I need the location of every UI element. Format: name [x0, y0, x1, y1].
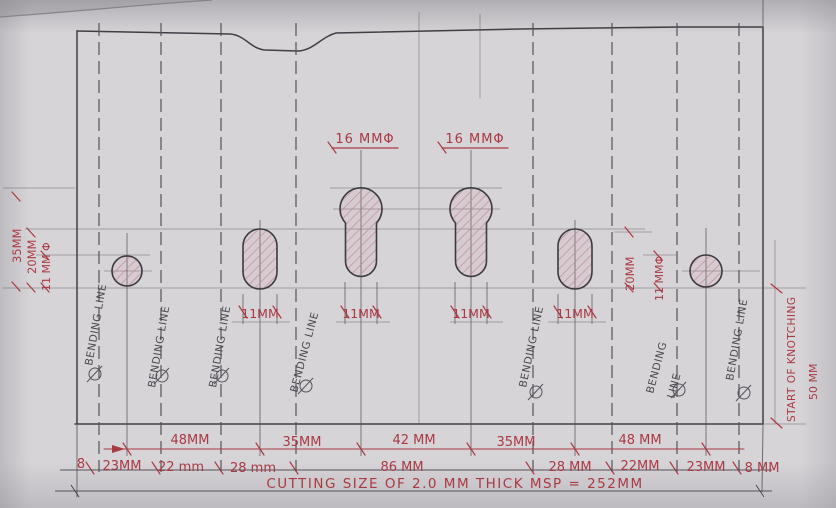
seg-23-left: 23MM	[103, 459, 142, 474]
dim-35-2: 35MM	[497, 435, 536, 450]
keyhole-slot-left-16mm	[340, 188, 382, 277]
dim-35-1: 35MM	[283, 435, 322, 450]
width-label-keyhole-1: 11MM	[342, 306, 379, 321]
seg-22-right: 22MM	[621, 459, 660, 474]
right-dim-11mm-dia: 11 MMΦ	[653, 256, 666, 301]
photographed-drawing-sheet: 16 MMΦ 16 MMΦ 11MM 11MM 11MM 11MM 35MM 2…	[0, 0, 836, 508]
cutting-size-note: CUTTING SIZE OF 2.0 MM THICK MSP = 252MM	[266, 476, 643, 492]
paper-background	[0, 0, 836, 508]
slot-right-11mm	[558, 229, 592, 289]
round-hole-left-11mm	[112, 256, 142, 286]
round-hole-right-11mm	[690, 255, 722, 287]
seg-28-left: 28 mm	[230, 461, 276, 476]
width-label-slot-2: 11MM	[556, 306, 593, 321]
left-dim-35mm: 35MM	[10, 229, 24, 263]
seg-22-left: 22 mm	[158, 460, 204, 475]
dia-label-keyhole-1: 16 MMΦ	[335, 132, 394, 147]
left-dim-11mm-dia: 11 MM Φ	[40, 242, 53, 291]
knotching-50mm-label: 50 MM	[807, 364, 820, 400]
shadow-right	[800, 0, 836, 508]
dim-42: 42 MM	[392, 433, 435, 448]
paper	[0, 0, 836, 508]
dim-48-1: 48MM	[171, 433, 210, 448]
dia-label-keyhole-2: 16 MMΦ	[445, 132, 504, 147]
start-of-knotching-label: START OF KNOTCHING	[786, 297, 798, 423]
shadow-top	[0, 0, 836, 34]
dim-48-2: 48 MM	[618, 433, 661, 448]
seg-28-right: 28 MM	[548, 460, 591, 475]
width-label-keyhole-2: 11MM	[452, 306, 489, 321]
seg-23-right: 23MM	[687, 460, 726, 475]
keyhole-slot-right-16mm	[450, 188, 492, 277]
cutting-layout-drawing: 16 MMΦ 16 MMΦ 11MM 11MM 11MM 11MM 35MM 2…	[0, 0, 836, 508]
width-label-slot-1: 11MM	[241, 306, 278, 321]
left-dim-20mm: 20MM	[25, 240, 39, 274]
seg-8-right: 8 MM	[745, 461, 780, 476]
seg-86: 86 MM	[380, 460, 423, 475]
seg-8-left: 8	[77, 457, 85, 472]
slot-left-11mm	[243, 229, 277, 289]
right-dim-20mm: 20MM	[623, 257, 637, 291]
